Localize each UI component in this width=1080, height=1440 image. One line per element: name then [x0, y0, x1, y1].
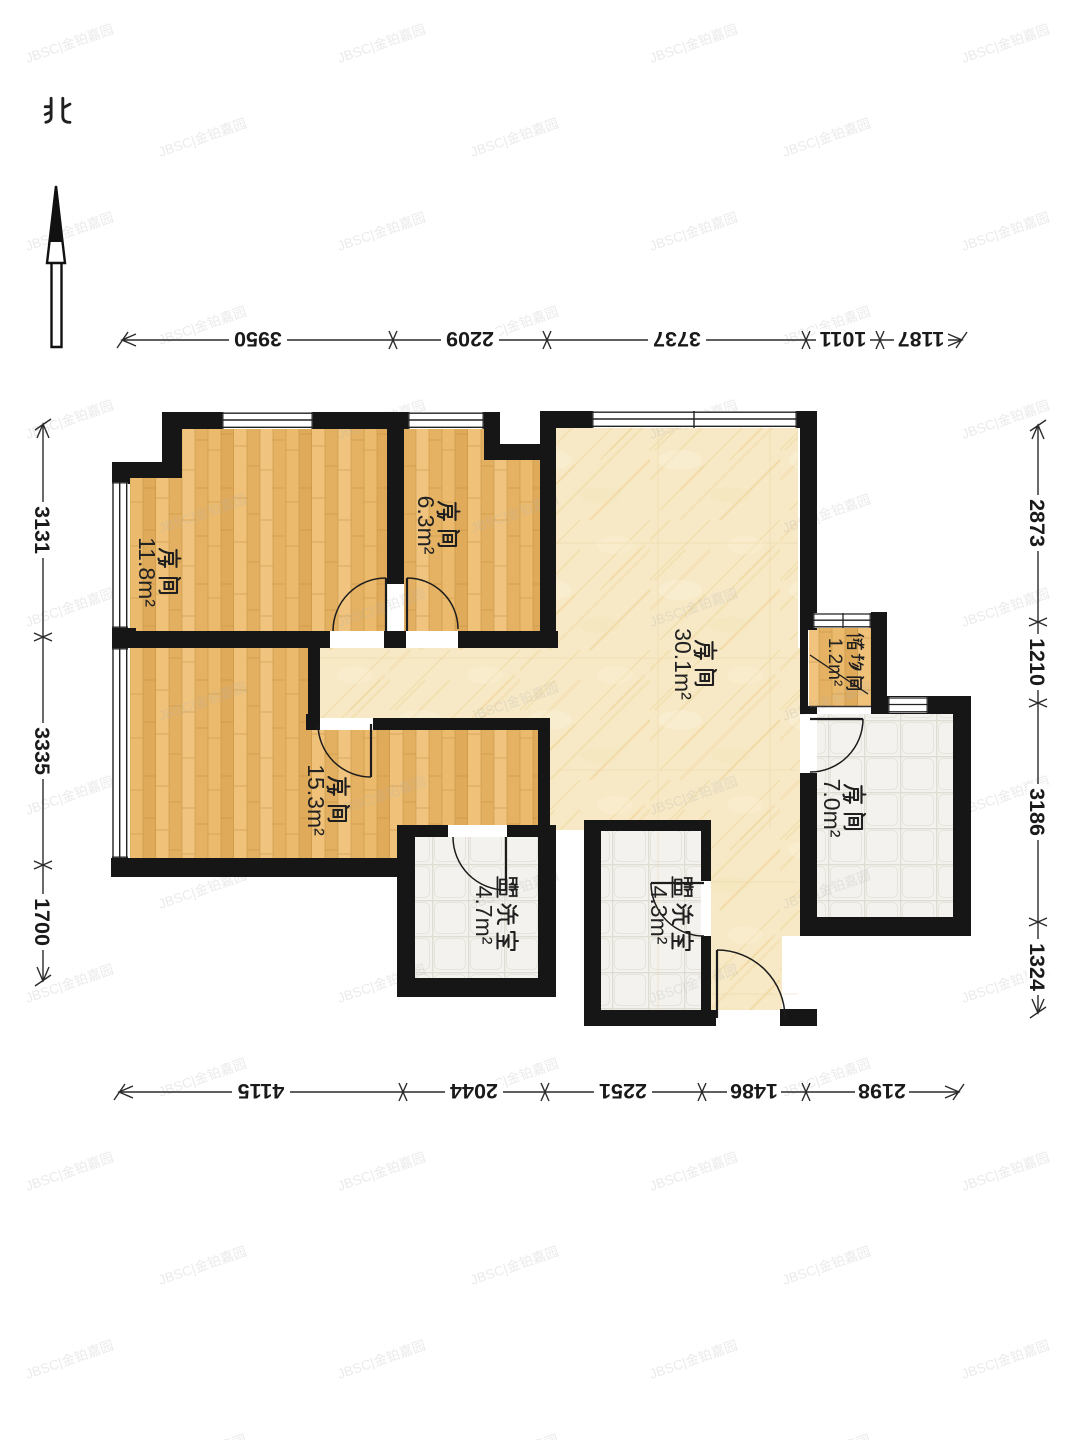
svg-text:1700: 1700	[30, 898, 54, 946]
svg-text:3131: 3131	[30, 506, 54, 554]
svg-text:4.3m²: 4.3m²	[646, 886, 672, 945]
svg-text:1187: 1187	[898, 327, 945, 351]
svg-text:2251: 2251	[599, 1079, 647, 1103]
svg-text:3950: 3950	[234, 327, 282, 351]
svg-text:1210: 1210	[1025, 638, 1049, 686]
svg-text:3335: 3335	[30, 727, 54, 775]
svg-text:4115: 4115	[238, 1079, 285, 1103]
svg-text:2873: 2873	[1025, 499, 1049, 547]
svg-text:1.2m²: 1.2m²	[824, 638, 845, 687]
svg-text:4.7m²: 4.7m²	[471, 886, 497, 945]
svg-text:11.8m²: 11.8m²	[134, 537, 160, 607]
svg-text:15.3m²: 15.3m²	[303, 764, 329, 836]
svg-text:30.1m²: 30.1m²	[670, 628, 696, 700]
svg-text:3737: 3737	[653, 327, 701, 351]
svg-text:1011: 1011	[820, 327, 867, 351]
svg-text:7.0m²: 7.0m²	[819, 779, 845, 838]
svg-text:1486: 1486	[730, 1079, 778, 1103]
svg-text:2198: 2198	[858, 1079, 906, 1103]
svg-text:2044: 2044	[450, 1079, 498, 1103]
svg-text:3186: 3186	[1025, 788, 1049, 836]
svg-text:1324: 1324	[1025, 943, 1049, 991]
svg-text:6.3m²: 6.3m²	[413, 496, 439, 555]
svg-text:2209: 2209	[446, 327, 494, 351]
